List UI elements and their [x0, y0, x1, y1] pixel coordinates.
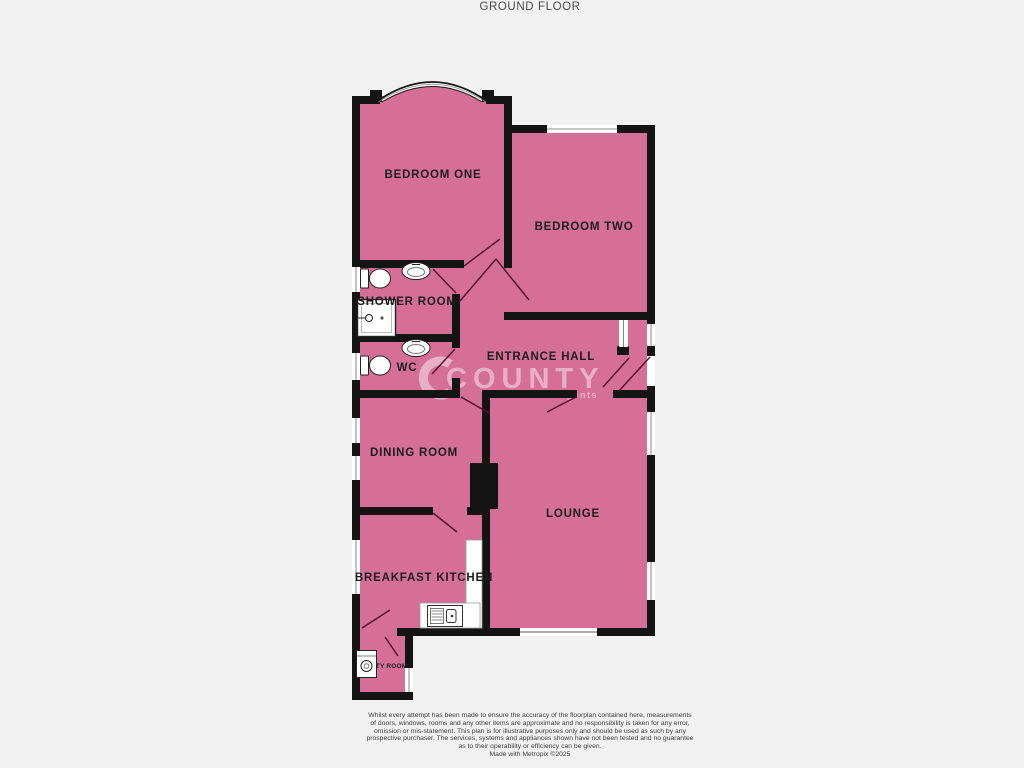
room-label-entrance-hall: ENTRANCE HALL [487, 351, 595, 363]
wall [647, 600, 655, 636]
credit-text: Made with Metropix ©2025 [295, 751, 765, 759]
room-label-dining-room: DINING ROOM [370, 447, 458, 459]
wall [647, 386, 655, 412]
window [405, 668, 413, 692]
window [647, 562, 655, 600]
footer: Whilst every attempt has been made to en… [295, 712, 765, 759]
toilet-icon [361, 356, 391, 375]
room-fill-bedroom-one [352, 96, 512, 268]
wall [647, 455, 655, 562]
wall [647, 346, 655, 356]
room-label-breakfast-kitchen: BREAKFAST KITCHEN [355, 572, 493, 584]
window [352, 353, 360, 380]
wall [352, 507, 433, 515]
toilet-icon [361, 269, 391, 288]
window [647, 412, 655, 455]
wall [482, 90, 494, 102]
wall [617, 346, 629, 355]
wall [597, 628, 655, 636]
wall [486, 390, 577, 398]
window [352, 267, 360, 292]
wall [467, 507, 490, 515]
wall [482, 628, 520, 636]
wall [504, 96, 512, 268]
basin-icon [402, 340, 430, 357]
front-door-opening [647, 356, 655, 386]
window [547, 125, 617, 133]
disclaimer-text: Whilst every attempt has been made to en… [295, 712, 765, 751]
room-label-wc: WC [397, 362, 418, 374]
floor-plan: COUNTY estate agents [0, 0, 1024, 768]
wall [352, 390, 460, 398]
window [647, 324, 655, 346]
window [352, 456, 360, 480]
window [352, 540, 360, 594]
chimney-breast [470, 463, 498, 509]
patio-door [520, 628, 597, 636]
window [352, 418, 360, 443]
room-label-bedroom-two: BEDROOM TWO [535, 221, 634, 233]
wall [352, 692, 413, 700]
sink-unit-icon [428, 606, 463, 627]
room-label-lounge: LOUNGE [546, 508, 600, 520]
window [619, 320, 628, 347]
wall [647, 125, 655, 324]
washing-machine-icon [357, 651, 377, 678]
basin-icon [402, 263, 430, 280]
room-label-bedroom-one: BEDROOM ONE [385, 169, 482, 181]
wall [504, 312, 655, 320]
room-label-shower-room: SHOWER ROOM [357, 296, 457, 308]
wall [397, 628, 490, 636]
